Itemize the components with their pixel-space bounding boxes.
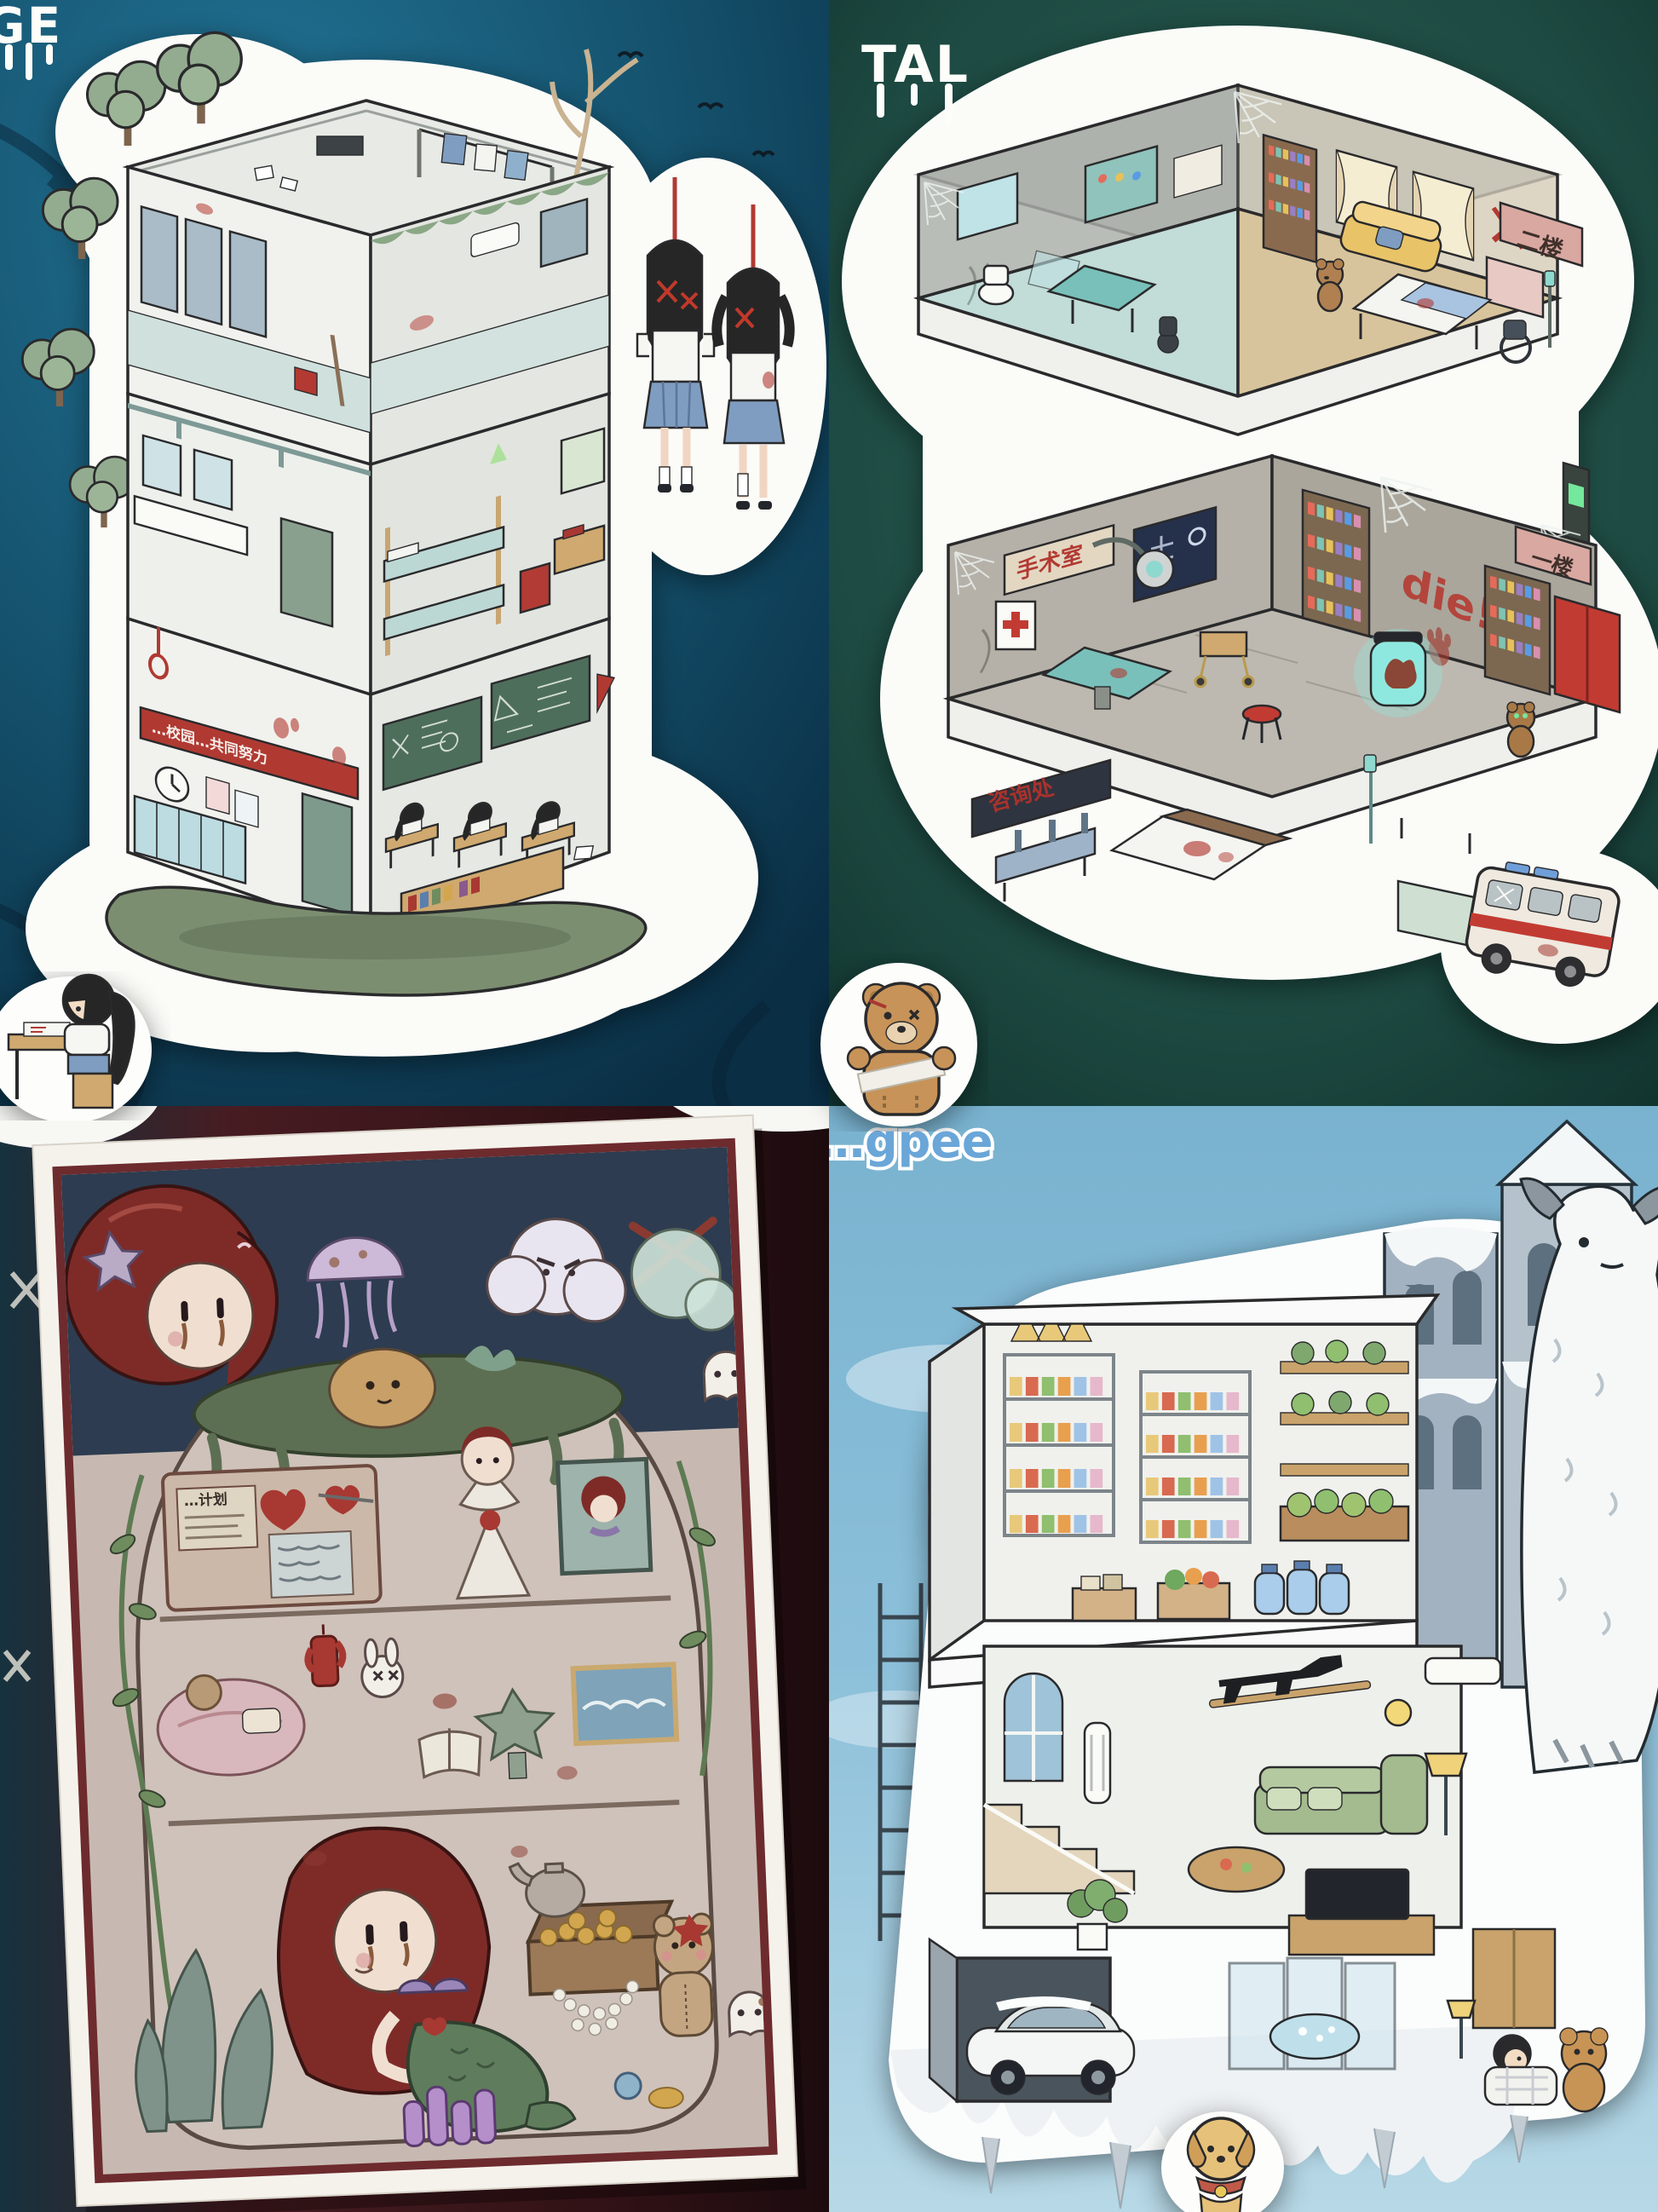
eye <box>76 1006 81 1011</box>
exit-door-glow <box>1563 463 1589 549</box>
open-book <box>24 1022 70 1036</box>
gold-nugget <box>648 2087 683 2109</box>
board-note: …计划 <box>184 1490 228 1510</box>
ac-unit <box>1425 1658 1500 1684</box>
framed-poster: …计划 <box>32 1115 806 2212</box>
shirt <box>653 331 699 382</box>
living-room <box>984 1646 1500 1955</box>
rooftop-stove <box>317 136 363 155</box>
four-panel-art-collage: …校园…共同努力 <box>0 0 1658 2212</box>
red-suitcase <box>521 563 550 613</box>
mermaid-portrait <box>557 1459 650 1573</box>
mirror <box>143 435 181 495</box>
teddy-head <box>187 1675 222 1711</box>
door <box>281 518 332 626</box>
collar-tag <box>1215 2186 1227 2198</box>
arm <box>933 1047 955 1069</box>
ghost-girl-desk-sticker <box>0 971 170 1120</box>
mirror <box>194 450 232 510</box>
blue-pearl <box>615 2072 642 2099</box>
skirt <box>724 400 784 443</box>
window <box>541 199 587 267</box>
tower-fan <box>1085 1723 1110 1803</box>
arched-window-blue <box>1005 1673 1062 1781</box>
bandaged-teddy-sticker <box>809 953 988 1132</box>
garage <box>930 1939 1134 2101</box>
red-cross-cabinet <box>996 602 1035 649</box>
skirt <box>68 1055 109 1074</box>
open-garage-door <box>930 1939 957 2101</box>
leg-bandage <box>738 474 748 496</box>
glass-spa-room <box>1229 1958 1395 2069</box>
medicine-shelf <box>1303 490 1369 637</box>
shirt <box>65 1024 109 1055</box>
hair <box>63 975 114 1026</box>
seascape-painting <box>573 1664 677 1743</box>
window <box>561 429 604 493</box>
red-exit-door <box>1555 596 1620 712</box>
green-door <box>302 793 352 914</box>
green-sofa <box>1255 1755 1427 1834</box>
yeti-eye <box>1579 1237 1589 1247</box>
coffee-table <box>1189 1847 1284 1892</box>
panel-haunted-school: …校园…共同努力 <box>0 0 829 1106</box>
kotatsu-blanket <box>1485 2067 1557 2105</box>
panel-mermaid-jar: …计划 <box>0 1106 829 2212</box>
supply-shelf <box>1485 566 1550 694</box>
arm <box>848 1047 870 1069</box>
grass-shadow <box>179 915 571 959</box>
bread-bags <box>1011 1324 1091 1341</box>
chair <box>73 1074 112 1108</box>
panel-frozen-bunker: …gpee <box>829 1106 1658 2212</box>
water-jugs <box>1255 1561 1349 1614</box>
round-tub <box>1270 2014 1359 2059</box>
panel-haunted-hospital: 二楼 手术室 <box>829 0 1658 1106</box>
notice-board: …计划 <box>163 1466 381 1610</box>
specimen-jar <box>1354 629 1442 717</box>
office-chair <box>1158 317 1178 353</box>
wall-lamp <box>1385 1700 1411 1725</box>
